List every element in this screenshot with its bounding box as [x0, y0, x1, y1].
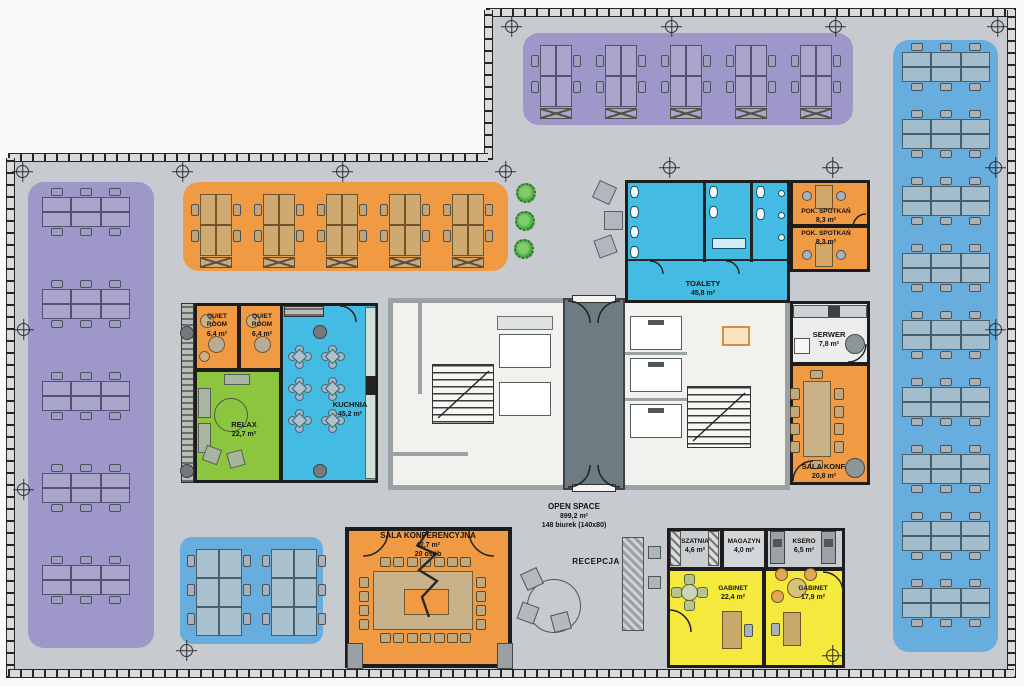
- chair: [485, 204, 493, 216]
- chair: [940, 445, 952, 453]
- chair: [661, 55, 669, 67]
- desk: [389, 225, 405, 256]
- facade-wall-right: [1007, 10, 1016, 678]
- desk: [263, 194, 279, 225]
- toilet-icon: [630, 186, 639, 198]
- desk: [902, 134, 931, 149]
- desk: [71, 580, 100, 595]
- desk: [452, 194, 468, 225]
- desk: [271, 549, 294, 578]
- chair: [422, 204, 430, 216]
- chair: [191, 230, 199, 242]
- sofa: [198, 388, 211, 418]
- chair: [359, 577, 369, 588]
- chair: [771, 623, 780, 636]
- chair: [109, 320, 121, 328]
- desk: [686, 76, 702, 107]
- facade-wall-left-wing-top: [8, 153, 488, 162]
- desk: [200, 194, 216, 225]
- chair: [940, 619, 952, 627]
- room-gabinet-1: [667, 568, 765, 668]
- chair: [80, 412, 92, 420]
- desk: [621, 45, 637, 76]
- desk: [931, 134, 960, 149]
- chair: [834, 406, 844, 418]
- pouf: [199, 351, 210, 362]
- chair: [969, 351, 981, 359]
- chair: [596, 81, 604, 93]
- desk: [931, 52, 960, 67]
- wardrobe-strip: [670, 531, 681, 566]
- storage-box: [735, 108, 767, 119]
- toilet-partition-wall: [628, 259, 787, 261]
- desk-bench: [42, 473, 130, 503]
- desk-bench: [902, 521, 990, 551]
- desk: [902, 536, 931, 551]
- desk: [816, 76, 832, 107]
- desk: [931, 67, 960, 82]
- desk: [342, 194, 358, 225]
- desk-cluster: [540, 45, 572, 107]
- chair: [969, 552, 981, 560]
- chair: [191, 204, 199, 216]
- elevator-car-icon: [648, 320, 664, 325]
- elevator-machinery: [497, 316, 553, 330]
- chair: [911, 418, 923, 426]
- facade-wall-notch: [484, 10, 493, 160]
- desk: [931, 454, 960, 469]
- column: [845, 458, 865, 478]
- desk: [101, 488, 130, 503]
- desk: [961, 52, 990, 67]
- copier-icon: [770, 531, 785, 564]
- desk: [931, 335, 960, 350]
- desk: [621, 76, 637, 107]
- desk: [71, 304, 100, 319]
- desk-cluster: [263, 194, 295, 256]
- chair: [420, 633, 431, 643]
- desk: [71, 396, 100, 411]
- desk: [902, 268, 931, 283]
- chair: [233, 230, 241, 242]
- elevator-lobby: [563, 298, 625, 490]
- room-label-relax: RELAX 22,7 m²: [231, 420, 256, 439]
- desk: [931, 253, 960, 268]
- desk: [294, 549, 317, 578]
- chair: [969, 378, 981, 386]
- core-wall: [418, 302, 422, 394]
- chair: [703, 55, 711, 67]
- kitchen-table: [288, 377, 312, 401]
- desk: [931, 521, 960, 536]
- chair: [318, 613, 326, 625]
- desk: [800, 76, 816, 107]
- desk: [196, 607, 219, 636]
- chair: [109, 412, 121, 420]
- chair: [834, 423, 844, 435]
- desk: [735, 76, 751, 107]
- chair: [940, 552, 952, 560]
- desk: [42, 565, 71, 580]
- grid-marker-icon: [499, 165, 512, 178]
- desk: [902, 335, 931, 350]
- chair: [531, 55, 539, 67]
- desk: [42, 304, 71, 319]
- chair: [940, 512, 952, 520]
- room-label-quiet-room-1: QUIET ROOM 6,4 m²: [199, 313, 235, 339]
- desk: [101, 212, 130, 227]
- chair: [80, 188, 92, 196]
- desk: [42, 488, 71, 503]
- desk: [902, 253, 931, 268]
- desk: [902, 186, 931, 201]
- chair: [726, 81, 734, 93]
- chair: [359, 605, 369, 616]
- column: [845, 334, 865, 354]
- desk-cluster: [326, 194, 358, 256]
- desk: [405, 225, 421, 256]
- desk: [71, 381, 100, 396]
- desk: [101, 381, 130, 396]
- chair: [359, 591, 369, 602]
- desk: [931, 186, 960, 201]
- desk: [101, 197, 130, 212]
- chair: [51, 188, 63, 196]
- room-label-quiet-room-2: QUIET ROOM 6,4 m²: [244, 313, 280, 339]
- desk-bench: [902, 253, 990, 283]
- chair: [911, 445, 923, 453]
- grid-marker-icon: [826, 649, 839, 662]
- kitchen-table: [288, 409, 312, 433]
- desk: [71, 197, 100, 212]
- desk: [902, 119, 931, 134]
- table-top: [292, 349, 308, 365]
- desk: [931, 588, 960, 603]
- chair: [697, 587, 708, 598]
- chair: [109, 596, 121, 604]
- desk-bench: [196, 549, 242, 636]
- desk: [931, 201, 960, 216]
- grid-marker-icon: [505, 20, 518, 33]
- room-label-serwer: SERWER 7,8 m²: [813, 330, 846, 349]
- desk: [101, 473, 130, 488]
- chair: [187, 613, 195, 625]
- plant-icon: [515, 211, 535, 231]
- chair: [573, 81, 581, 93]
- desk: [735, 45, 751, 76]
- chair: [80, 280, 92, 288]
- chair: [969, 83, 981, 91]
- desk: [902, 588, 931, 603]
- chair: [836, 191, 846, 201]
- urinal-icon: [778, 190, 785, 197]
- elevator-car-icon: [648, 408, 664, 413]
- room-label-pok-spotkan-1: POK. SPOTKAŃ 8,3 m²: [801, 208, 850, 226]
- desk: [686, 45, 702, 76]
- toilet-icon: [630, 246, 639, 258]
- wardrobe-strip: [708, 531, 719, 566]
- desk: [902, 387, 931, 402]
- desk: [71, 212, 100, 227]
- chair: [51, 556, 63, 564]
- desk: [961, 387, 990, 402]
- chair: [969, 284, 981, 292]
- grid-marker-icon: [665, 20, 678, 33]
- chair: [802, 250, 812, 260]
- desk: [931, 536, 960, 551]
- chair: [911, 43, 923, 51]
- desk: [71, 565, 100, 580]
- chair: [531, 81, 539, 93]
- kitchen-appliance: [366, 376, 376, 395]
- desk: [468, 194, 484, 225]
- chair: [476, 605, 486, 616]
- desk: [216, 225, 232, 256]
- desk: [961, 253, 990, 268]
- chair: [940, 418, 952, 426]
- table-top: [325, 381, 341, 397]
- grid-marker-icon: [829, 20, 842, 33]
- chair: [80, 320, 92, 328]
- desk-bench: [42, 289, 130, 319]
- round-table: [681, 584, 698, 601]
- chair: [51, 504, 63, 512]
- chair: [911, 284, 923, 292]
- room-label-gabinet-1: GABINET 22,4 m²: [718, 585, 747, 603]
- chair: [911, 217, 923, 225]
- chair: [911, 619, 923, 627]
- desk: [279, 225, 295, 256]
- desk: [751, 45, 767, 76]
- chair: [443, 204, 451, 216]
- sink-counter: [712, 238, 746, 249]
- reception-desk: [622, 537, 644, 631]
- desk: [961, 402, 990, 417]
- desk: [961, 320, 990, 335]
- chair: [911, 110, 923, 118]
- chair: [476, 619, 486, 630]
- desk: [722, 611, 742, 649]
- chair: [359, 619, 369, 630]
- table-top: [292, 381, 308, 397]
- desk-bench: [42, 381, 130, 411]
- chair: [233, 204, 241, 216]
- chair: [318, 584, 326, 596]
- desk: [101, 580, 130, 595]
- chair: [380, 230, 388, 242]
- chair: [318, 555, 326, 567]
- kitchen-cabinet: [284, 306, 324, 317]
- chair: [703, 81, 711, 93]
- desk: [196, 578, 219, 607]
- desk: [605, 76, 621, 107]
- chair: [940, 311, 952, 319]
- copier-detail: [773, 539, 782, 547]
- desk: [931, 119, 960, 134]
- desk: [271, 607, 294, 636]
- chair: [969, 311, 981, 319]
- desk-bench: [902, 52, 990, 82]
- room-label-magazyn: MAGAZYN 4,0 m²: [728, 538, 761, 556]
- chair: [790, 406, 800, 418]
- equipment-box: [794, 338, 810, 354]
- chair: [109, 504, 121, 512]
- chair: [940, 378, 952, 386]
- grid-marker-icon: [17, 483, 30, 496]
- chair: [187, 555, 195, 567]
- chair: [51, 412, 63, 420]
- chair: [726, 55, 734, 67]
- chair: [476, 591, 486, 602]
- server-unit: [828, 306, 840, 317]
- toilet-partition-wall: [703, 182, 706, 262]
- desk: [294, 578, 317, 607]
- chair: [443, 230, 451, 242]
- desk: [540, 76, 556, 107]
- chair: [476, 577, 486, 588]
- chair: [422, 230, 430, 242]
- chair: [940, 485, 952, 493]
- chair: [109, 464, 121, 472]
- desk: [670, 76, 686, 107]
- chair: [661, 81, 669, 93]
- chair: [80, 504, 92, 512]
- chair: [262, 584, 270, 596]
- chair: [940, 351, 952, 359]
- chair: [802, 191, 812, 201]
- desk: [902, 67, 931, 82]
- chair: [969, 110, 981, 118]
- chair: [638, 81, 646, 93]
- desk: [961, 201, 990, 216]
- chair: [317, 204, 325, 216]
- chair: [834, 441, 844, 453]
- chair: [317, 230, 325, 242]
- chair: [434, 633, 445, 643]
- chair: [911, 512, 923, 520]
- chair: [911, 311, 923, 319]
- kitchen-table: [321, 345, 345, 369]
- pillar: [347, 643, 363, 669]
- chair: [109, 556, 121, 564]
- elevator-shaft: [499, 382, 551, 416]
- chair: [109, 228, 121, 236]
- chair: [791, 55, 799, 67]
- desk: [540, 45, 556, 76]
- desk: [815, 185, 833, 209]
- chair: [51, 464, 63, 472]
- chair: [940, 244, 952, 252]
- desk: [294, 607, 317, 636]
- copier-icon: [821, 531, 836, 564]
- desk: [42, 473, 71, 488]
- storage-box: [326, 257, 358, 268]
- chair: [109, 280, 121, 288]
- desk-cluster: [200, 194, 232, 256]
- core-wall: [625, 398, 687, 401]
- pouf: [771, 590, 784, 603]
- copier-detail: [824, 539, 833, 547]
- chair: [187, 584, 195, 596]
- desk-bench: [902, 186, 990, 216]
- desk: [931, 387, 960, 402]
- storage-box: [263, 257, 295, 268]
- chair: [969, 244, 981, 252]
- conference-table: [803, 381, 831, 457]
- core-wall: [392, 452, 468, 456]
- room-label-gabinet-2: GABINET 17,9 m²: [798, 585, 827, 603]
- chair: [833, 55, 841, 67]
- desk: [556, 76, 572, 107]
- desk-bench: [902, 588, 990, 618]
- chair: [791, 81, 799, 93]
- room-label-kuchnia: KUCHNIA 45,2 m²: [333, 400, 368, 419]
- chair: [940, 150, 952, 158]
- desk: [961, 521, 990, 536]
- desk: [902, 521, 931, 536]
- table-top: [325, 349, 341, 365]
- facade-wall-bottom: [8, 669, 1014, 678]
- grid-marker-icon: [336, 165, 349, 178]
- chair: [911, 378, 923, 386]
- grid-marker-icon: [663, 161, 676, 174]
- staircase: [432, 364, 494, 424]
- chair: [833, 81, 841, 93]
- sofa: [224, 374, 250, 385]
- desk: [902, 320, 931, 335]
- chair: [940, 579, 952, 587]
- desk: [961, 454, 990, 469]
- grid-marker-icon: [826, 161, 839, 174]
- column: [180, 464, 194, 478]
- chair: [969, 150, 981, 158]
- chair: [940, 217, 952, 225]
- desk: [452, 225, 468, 256]
- chair: [447, 633, 458, 643]
- chair: [359, 204, 367, 216]
- chair: [969, 512, 981, 520]
- storage-box: [200, 257, 232, 268]
- chair: [573, 55, 581, 67]
- desk: [200, 225, 216, 256]
- chair: [359, 230, 367, 242]
- desk: [326, 194, 342, 225]
- desk-cluster: [735, 45, 767, 107]
- column: [313, 464, 327, 478]
- chair: [262, 613, 270, 625]
- desk-bench: [902, 387, 990, 417]
- desk-bench: [271, 549, 317, 636]
- staircase: [687, 386, 751, 448]
- chair: [790, 441, 800, 453]
- grid-marker-icon: [176, 165, 189, 178]
- chair: [80, 464, 92, 472]
- storage-box: [452, 257, 484, 268]
- facade-wall-left: [6, 158, 15, 678]
- desk: [961, 119, 990, 134]
- toilet-icon: [709, 206, 718, 218]
- desk-bench: [902, 320, 990, 350]
- column: [180, 326, 194, 340]
- urinal-icon: [778, 212, 785, 219]
- office-floor-plan: QUIET ROOM 6,4 m² QUIET ROOM 6,4 m² RELA…: [0, 0, 1024, 686]
- column: [313, 325, 327, 339]
- pouf: [775, 568, 788, 581]
- chair: [51, 280, 63, 288]
- chair: [969, 579, 981, 587]
- room-label-ksero: KSERO 6,5 m²: [792, 538, 815, 556]
- chair: [969, 177, 981, 185]
